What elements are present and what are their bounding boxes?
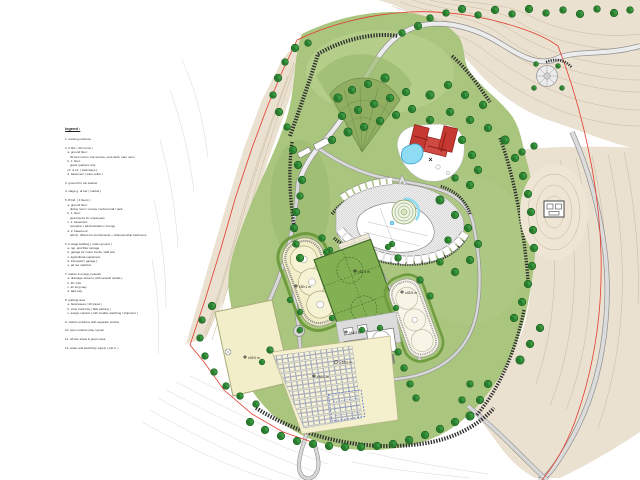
tree-icon [407,381,414,388]
tree-icon [364,80,372,88]
tree-icon [610,9,618,17]
tree-icon [525,5,533,13]
tree-icon [417,277,424,284]
tree-icon [519,149,526,156]
tree-icon [451,268,459,276]
tree-icon [560,7,567,14]
tree-icon [360,123,368,131]
tree-icon [555,63,560,68]
tree-icon [501,136,509,144]
tree-icon [459,397,466,404]
tree-icon [466,181,474,189]
tree-icon [458,136,466,144]
tree-icon [436,196,444,204]
tree-icon [287,297,293,303]
tree-icon [491,6,499,14]
tree-icon [527,208,535,216]
tree-icon [529,226,537,234]
tree-icon [377,325,383,331]
tree-icon [468,151,476,159]
tree-icon [319,235,326,242]
tree-icon [246,418,254,426]
legend-body: 1. existing entrance 2. A bld. ( 40 room… [65,133,190,350]
tree-icon [484,124,492,132]
tree-icon [576,10,584,18]
tree-icon [329,315,335,321]
tree-icon [461,91,469,99]
tree-icon [376,117,384,125]
tree-icon [427,293,434,300]
tree-icon [536,324,544,332]
tree-icon [373,442,381,450]
tree-icon [275,108,283,116]
tree-icon [475,12,482,19]
tree-icon [208,302,216,310]
tree-icon [436,425,444,433]
svg-text:±49.0 m: ±49.0 m [248,356,260,360]
tree-icon [293,241,300,248]
tree-icon [531,85,536,90]
tree-icon [484,380,492,388]
svg-text:±55.0 m: ±55.0 m [340,361,352,365]
tree-icon [389,440,397,448]
tree-icon [437,259,444,266]
tree-icon [466,116,474,124]
svg-text:±58.2 m: ±58.2 m [349,331,361,335]
tree-icon [284,124,291,131]
tree-icon [334,94,342,102]
tree-icon [297,327,303,333]
tree-icon [426,116,434,124]
tree-icon [199,317,206,324]
tree-icon [282,59,289,66]
tree-icon [395,255,402,262]
tree-icon [594,6,601,13]
tree-icon [259,359,265,365]
tree-icon [267,347,274,354]
tree-icon [427,15,434,22]
tree-icon [298,176,306,184]
tree-icon [381,74,389,82]
svg-text:±50.1 m: ±50.1 m [299,285,311,289]
tree-icon [458,5,466,13]
tree-icon [479,101,487,109]
tree-icon [464,224,472,232]
legend: legend : 1. existing entrance 2. A bld. … [65,126,190,350]
tree-icon [296,254,304,262]
tree-icon [524,280,532,288]
tree-icon [421,431,429,439]
tree-icon [395,349,402,356]
tree-icon [519,172,527,180]
tree-icon [253,401,260,408]
tree-icon [297,309,303,315]
tree-icon [476,396,484,404]
tree-icon [446,108,454,116]
tree-icon [528,262,536,270]
tree-icon [386,94,394,102]
tree-icon [445,237,452,244]
tree-icon [627,7,634,14]
tree-icon [223,383,230,390]
tree-icon [451,211,459,219]
tree-icon [452,175,459,182]
tree-icon [531,143,538,150]
tree-icon [524,190,532,198]
tree-icon [518,298,526,306]
tree-icon [354,106,362,114]
tree-icon [291,44,299,52]
tree-icon [466,256,474,264]
tree-icon [444,81,452,89]
tree-icon [290,224,298,232]
tree-icon [526,340,534,348]
tree-icon [341,443,349,451]
tree-icon [305,40,312,47]
tree-icon [401,365,408,372]
tree-icon [474,166,482,174]
tree-icon [451,418,459,426]
tree-icon [323,249,329,255]
tree-icon [533,61,538,66]
tree-icon [510,314,518,322]
tree-icon [237,393,244,400]
tree-icon [277,432,285,440]
tree-icon [370,100,378,108]
tree-icon [348,86,356,94]
tree-icon [202,353,209,360]
tree-icon [511,154,519,162]
tree-icon [197,335,204,342]
tree-icon [509,11,516,18]
tree-icon [338,112,346,120]
gazebo-lookout [537,66,558,87]
tree-icon [293,437,301,445]
tree-icon [467,381,474,388]
tree-icon [389,241,395,247]
tree-icon [399,30,406,37]
tree-icon [413,395,420,402]
tree-icon [474,240,482,248]
tree-icon [393,305,399,311]
tree-icon [292,208,300,216]
tree-icon [530,244,538,252]
tree-icon [297,193,304,200]
site-plan-sheet: ±50.1 m ±57.0 m ±48.5 m ±49.0 m ±52.0 m … [0,0,640,480]
svg-text:±52.0 m: ±52.0 m [317,375,329,379]
tree-icon [294,161,302,169]
tree-icon [405,436,413,444]
tree-icon [543,10,550,17]
tree-icon [392,111,400,119]
svg-text:±57.0 m: ±57.0 m [358,270,370,274]
tree-icon [516,356,524,364]
tree-icon [289,146,297,154]
tree-icon [466,412,474,420]
tree-icon [274,74,282,82]
legend-title: legend : [65,126,190,131]
tree-icon [357,443,365,451]
tree-icon [328,136,336,144]
tree-icon [344,128,352,136]
tree-icon [414,22,422,30]
tree-icon [309,440,317,448]
tree-icon [443,10,450,17]
tree-icon [402,88,410,96]
tree-icon [426,91,434,99]
tree-icon [270,92,277,99]
tree-icon [408,105,416,113]
svg-text:±48.5 m: ±48.5 m [405,291,417,295]
tree-icon [559,85,564,90]
tree-icon [325,442,333,450]
tree-icon [261,426,269,434]
tree-icon [211,369,218,376]
